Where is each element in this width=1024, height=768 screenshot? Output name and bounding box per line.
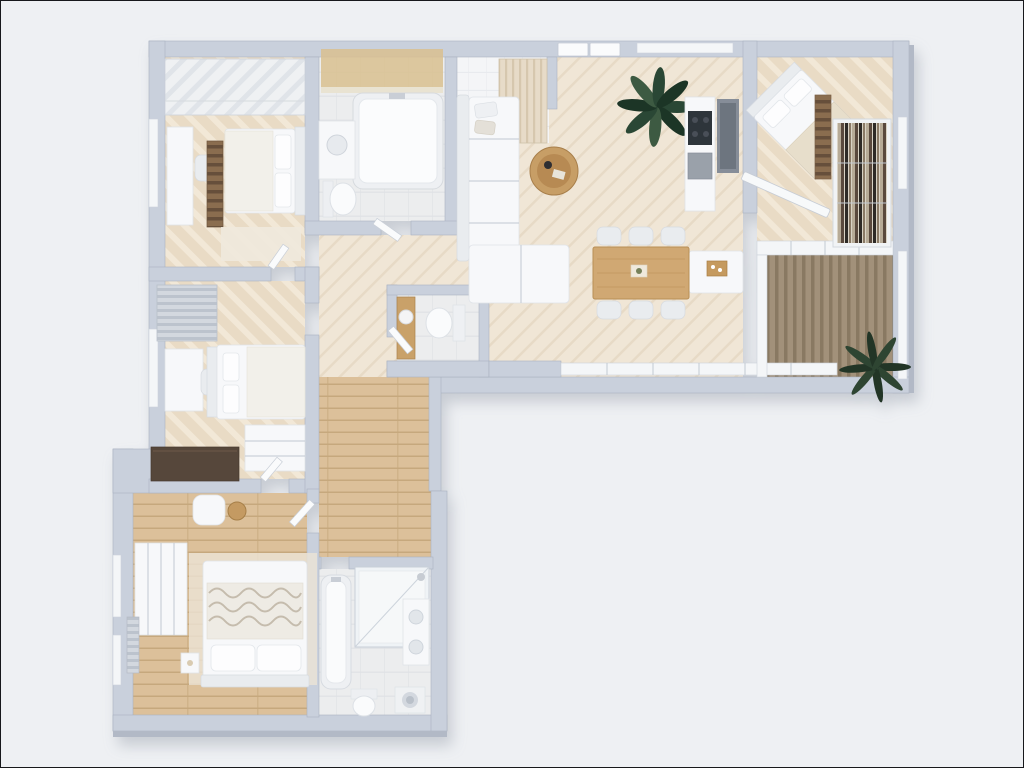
- cooktop: [688, 111, 712, 145]
- desk: [165, 349, 203, 411]
- dining-chair: [629, 227, 653, 245]
- vanity-counter-edge: [321, 87, 443, 93]
- centerpiece-plant: [636, 268, 642, 274]
- ladder-rack: [815, 95, 831, 179]
- wall-bottom-main: [437, 377, 909, 393]
- striped-cabinet: [157, 285, 217, 341]
- dining-chair: [661, 301, 685, 319]
- wall-dining-bottom: [489, 361, 561, 377]
- bed-pillow: [275, 135, 291, 169]
- bed-headboard: [207, 347, 217, 417]
- bathtub-inner: [359, 99, 437, 183]
- bed-duvet: [225, 131, 273, 211]
- window-balcony-right: [898, 251, 907, 379]
- wall-bath-bottom-a: [305, 221, 381, 235]
- wall-corridor-right: [429, 377, 441, 491]
- sofa-back: [457, 95, 469, 261]
- window-living-top: [637, 43, 733, 53]
- bed-pillow: [257, 645, 301, 671]
- kitchen-appliance: [688, 153, 712, 179]
- front-door-leaf: [558, 43, 588, 56]
- bed-headboard: [295, 127, 305, 215]
- wc-washbasin: [399, 310, 413, 324]
- tray-bottle: [718, 268, 722, 272]
- dining-chair: [629, 301, 653, 319]
- throw-pillow: [474, 120, 495, 135]
- wc-toilet-tank: [453, 305, 465, 341]
- wall-bedroomML-right-a: [305, 267, 319, 303]
- window-master-a: [113, 555, 121, 617]
- vanity-bowl: [409, 640, 423, 654]
- wall-lower-right: [431, 491, 447, 731]
- desk: [167, 127, 193, 225]
- table-decor-dark: [544, 161, 552, 169]
- bed-duvet: [247, 347, 305, 417]
- vanity-bowl: [409, 610, 423, 624]
- floor-plan-screenshot: [0, 0, 1024, 768]
- dark-sideboard: [151, 447, 239, 481]
- wall-kitchen-bedroomTR: [743, 41, 757, 213]
- wall-bedroomTL-bottom-a: [149, 267, 271, 281]
- toilet-bowl: [330, 183, 356, 215]
- throw-pillow: [474, 102, 498, 119]
- bed-pillow: [223, 385, 239, 413]
- wall-bottom-lower: [113, 715, 447, 731]
- wall-top-exterior: [149, 41, 909, 57]
- wall-entry-stub: [547, 57, 557, 109]
- bookshelf-books: [837, 123, 887, 243]
- bed-pillow: [211, 645, 255, 671]
- front-door-leaf: [590, 43, 620, 56]
- dining-chair: [661, 227, 685, 245]
- toilet-bowl: [353, 696, 375, 716]
- dining-chair: [597, 301, 621, 319]
- armchair: [193, 495, 225, 525]
- burner: [692, 131, 698, 137]
- rug: [221, 227, 301, 261]
- wc-toilet-bowl: [426, 308, 452, 338]
- burner: [692, 117, 698, 123]
- window-bedroomTL: [149, 119, 158, 207]
- tall-cabinet-front: [720, 103, 736, 169]
- wall-wc-bottom: [387, 361, 489, 377]
- tray-bottle: [711, 265, 715, 269]
- lit-vanity: [321, 49, 443, 91]
- wall-bedroomML-right-b: [305, 335, 319, 493]
- burner: [703, 117, 709, 123]
- bathtub-inner: [326, 581, 346, 683]
- serving-tray: [707, 261, 727, 276]
- wall-face-bottom: [113, 731, 447, 737]
- bed-headboard: [201, 675, 309, 687]
- glazing-balcony-left: [757, 255, 767, 377]
- wall-bedroomTL-bath: [305, 57, 319, 233]
- ladder-shelf: [207, 141, 223, 227]
- washbasin-bowl: [327, 135, 347, 155]
- wall-bath-living: [445, 57, 457, 233]
- radiator: [127, 617, 139, 673]
- wall-face-right: [909, 45, 914, 393]
- wall-bath-bottom-b: [411, 221, 457, 235]
- corridor-wood-floor: [319, 377, 429, 489]
- shower-head: [417, 573, 425, 581]
- sofa-chaise: [469, 245, 569, 303]
- bed-pillow: [275, 173, 291, 207]
- floor-plan-canvas: [1, 1, 1024, 768]
- wardrobe: [165, 59, 305, 115]
- window-bedroomTR: [898, 117, 907, 189]
- vanity: [403, 599, 429, 665]
- bathtub-faucet: [331, 577, 341, 582]
- nightstand-lamp: [187, 660, 193, 666]
- window-master-b: [113, 635, 121, 685]
- side-table: [228, 502, 246, 520]
- bathtub-faucet: [389, 93, 405, 99]
- washer-drum-inner: [406, 696, 414, 704]
- burner: [703, 131, 709, 137]
- dining-chair: [597, 227, 621, 245]
- bed-pillow: [223, 353, 239, 381]
- suite-hall-floor: [319, 489, 433, 557]
